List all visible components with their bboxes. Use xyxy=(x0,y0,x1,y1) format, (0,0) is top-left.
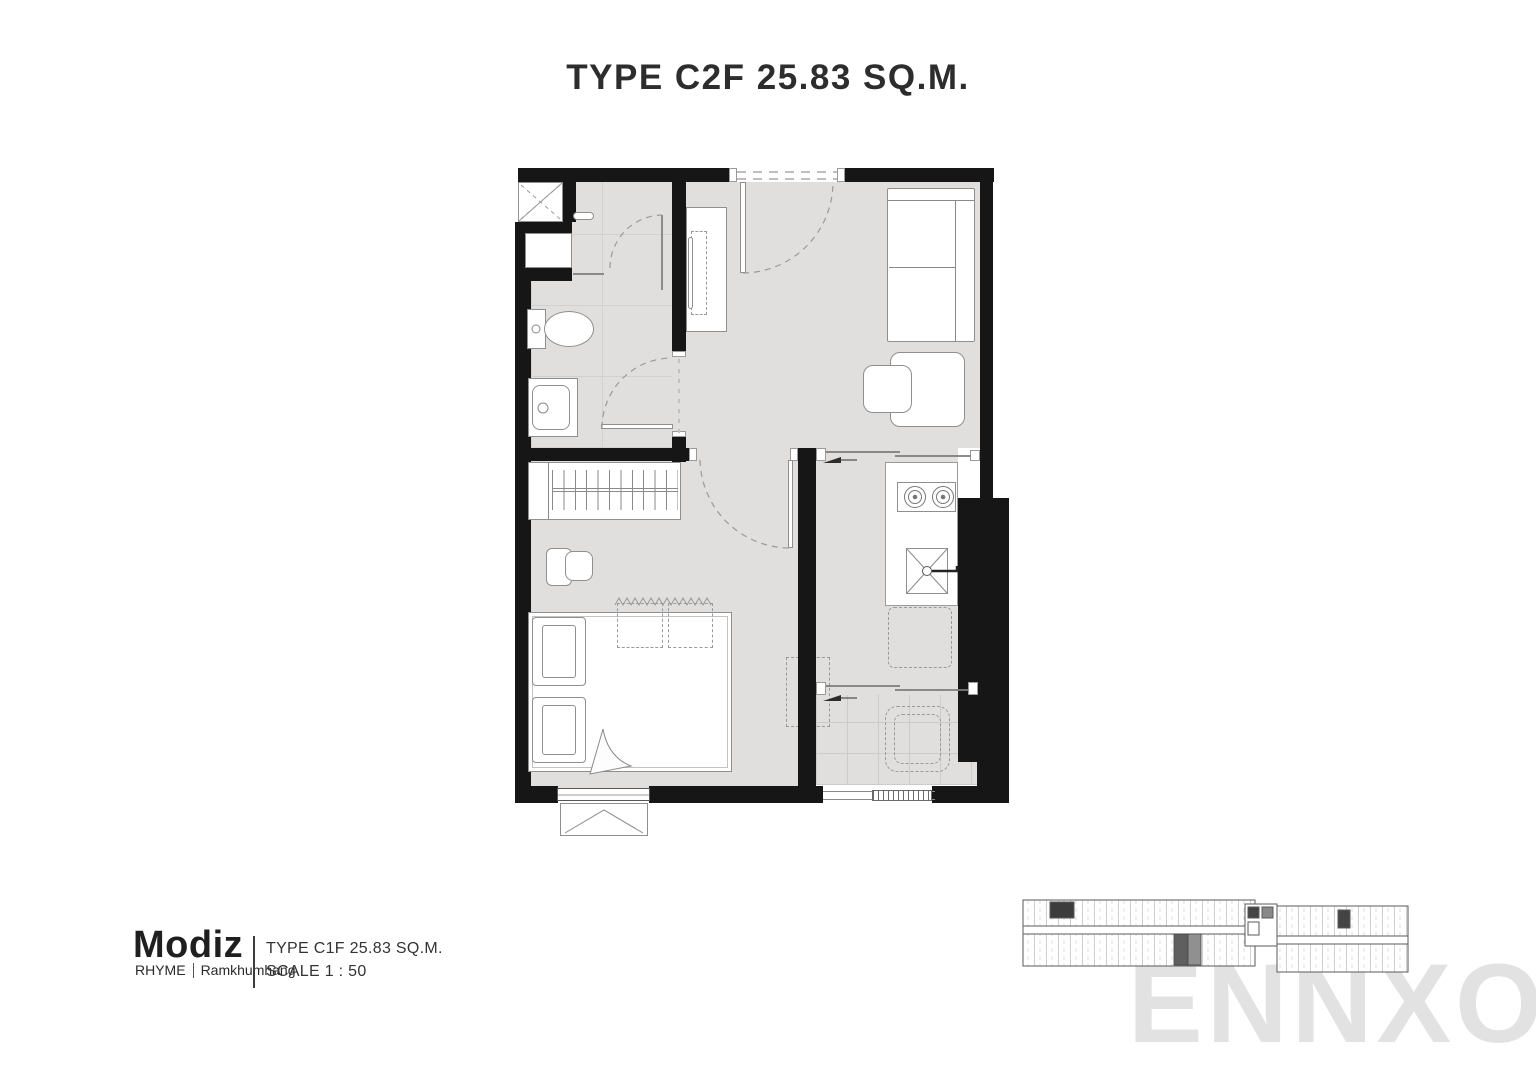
blanket-zigzag xyxy=(615,598,711,605)
brand-logo: Modiz xyxy=(133,924,243,967)
plan-annotations xyxy=(505,145,1025,845)
building-key-plan xyxy=(1022,896,1412,980)
key-plan-lift-3 xyxy=(1248,922,1259,935)
floor-plan xyxy=(505,145,1025,855)
entrance-door-arc xyxy=(743,182,833,273)
bedroom-door-arc xyxy=(700,460,790,548)
key-plan-right-wing xyxy=(1245,904,1408,972)
unit-type-label: TYPE C1F 25.83 SQ.M. xyxy=(266,940,443,958)
key-plan-lift-2 xyxy=(1262,907,1273,918)
bathroom-door-arc xyxy=(602,358,672,428)
blanket-fold xyxy=(590,729,631,774)
key-plan-core-left xyxy=(1050,902,1074,918)
basin-drain xyxy=(538,403,548,413)
balcony-sliding-door xyxy=(826,686,968,690)
key-plan-highlighted-unit xyxy=(1174,934,1188,965)
brand-series: RHYME xyxy=(135,962,186,978)
shower-diagonal xyxy=(519,183,562,221)
key-plan-left-wing xyxy=(1023,900,1255,966)
shower-door-arc xyxy=(610,215,662,268)
balcony-slide-arrow xyxy=(823,695,841,701)
scale-label: SCALE 1 : 50 xyxy=(266,963,367,981)
brand-subline-divider xyxy=(193,963,194,978)
footer-divider xyxy=(253,936,255,988)
sink-drain xyxy=(923,567,932,576)
key-plan-lift-1 xyxy=(1248,907,1259,918)
kitchen-slide-arrow xyxy=(823,457,841,463)
key-plan-highlighted-unit-2 xyxy=(1188,934,1201,965)
kitchen-sliding-door xyxy=(826,452,971,456)
entrance-threshold-dash xyxy=(737,172,837,179)
ac-chevron xyxy=(565,810,643,833)
page-title: TYPE C2F 25.83 SQ.M. xyxy=(0,58,1536,98)
toilet-knob xyxy=(532,325,540,333)
stove-burners xyxy=(905,487,954,508)
sink-faucet xyxy=(932,566,957,571)
key-plan-core-right xyxy=(1338,910,1350,928)
